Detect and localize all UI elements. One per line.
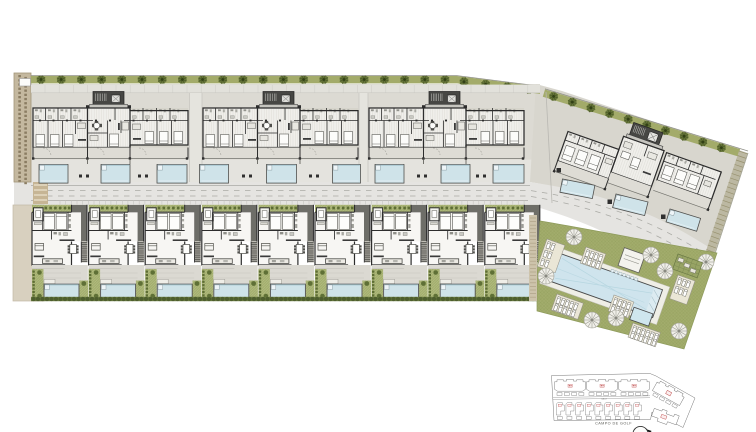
- svg-text:CAMPO DE GOLF: CAMPO DE GOLF: [595, 422, 632, 426]
- svg-text:CALLE: CALLE: [601, 397, 607, 400]
